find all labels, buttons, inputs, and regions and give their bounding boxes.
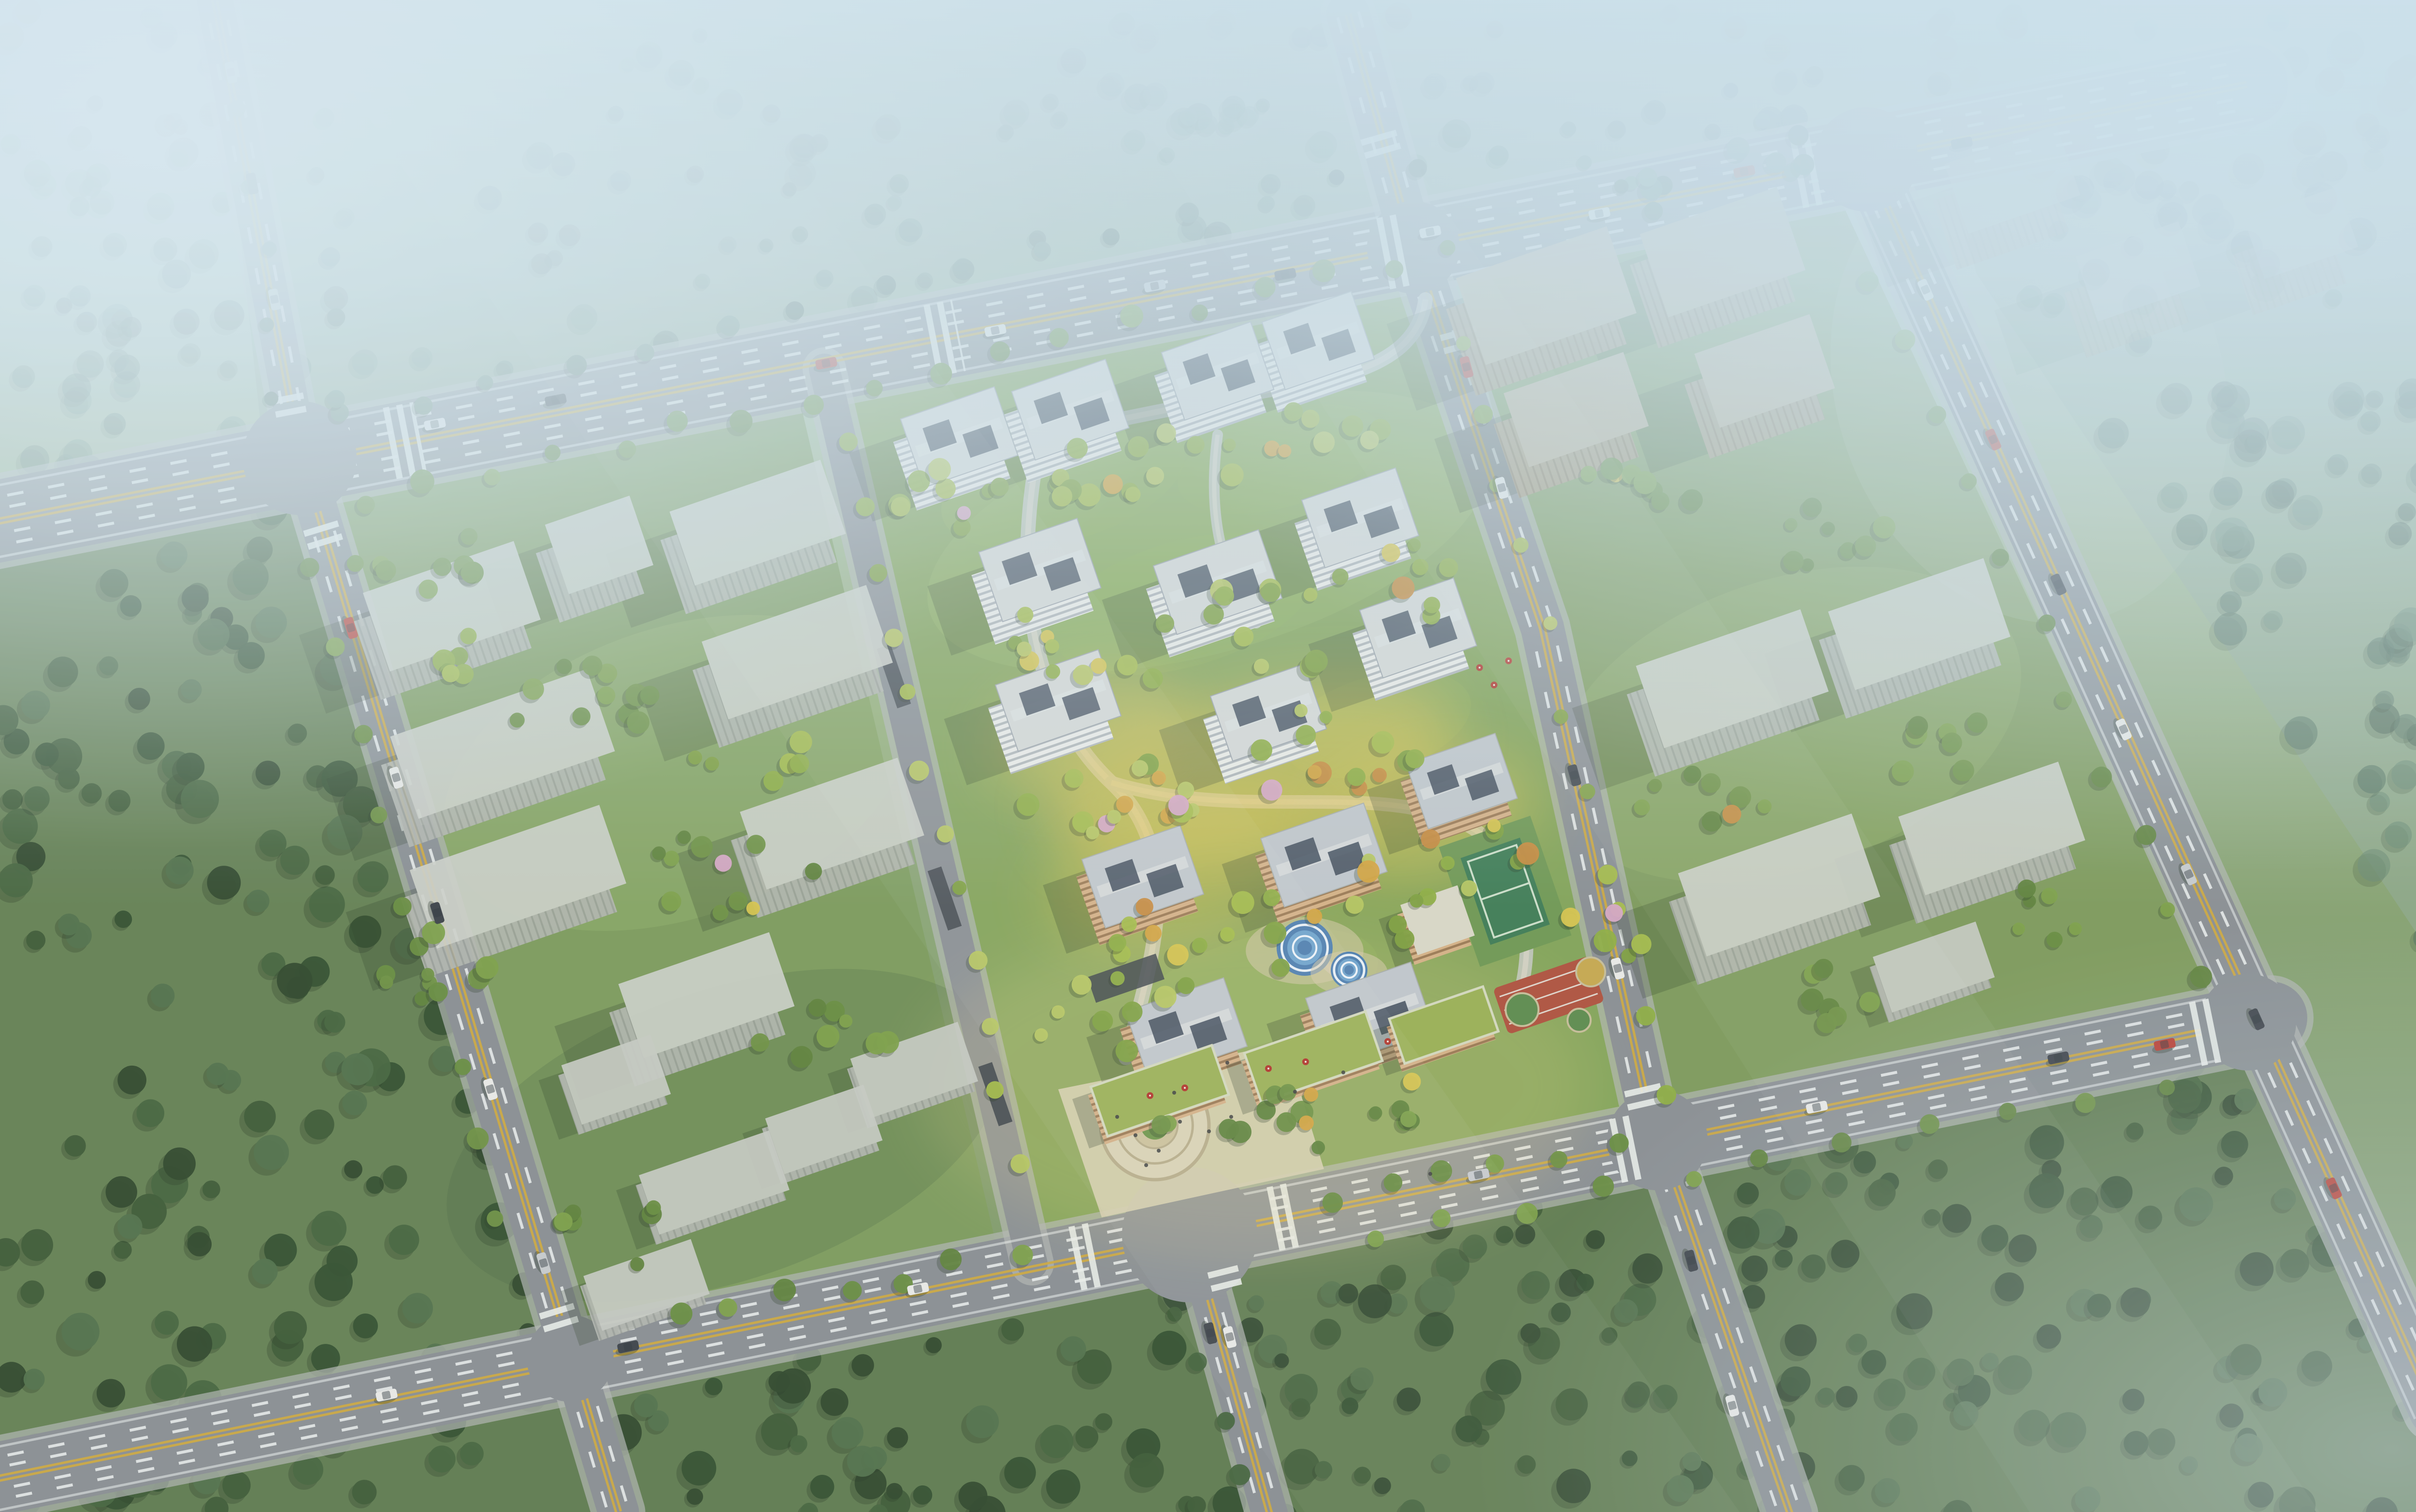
scene-svg xyxy=(0,0,2416,1512)
atmospheric-haze xyxy=(0,0,2416,1512)
aerial-masterplan-rendering xyxy=(0,0,2416,1512)
